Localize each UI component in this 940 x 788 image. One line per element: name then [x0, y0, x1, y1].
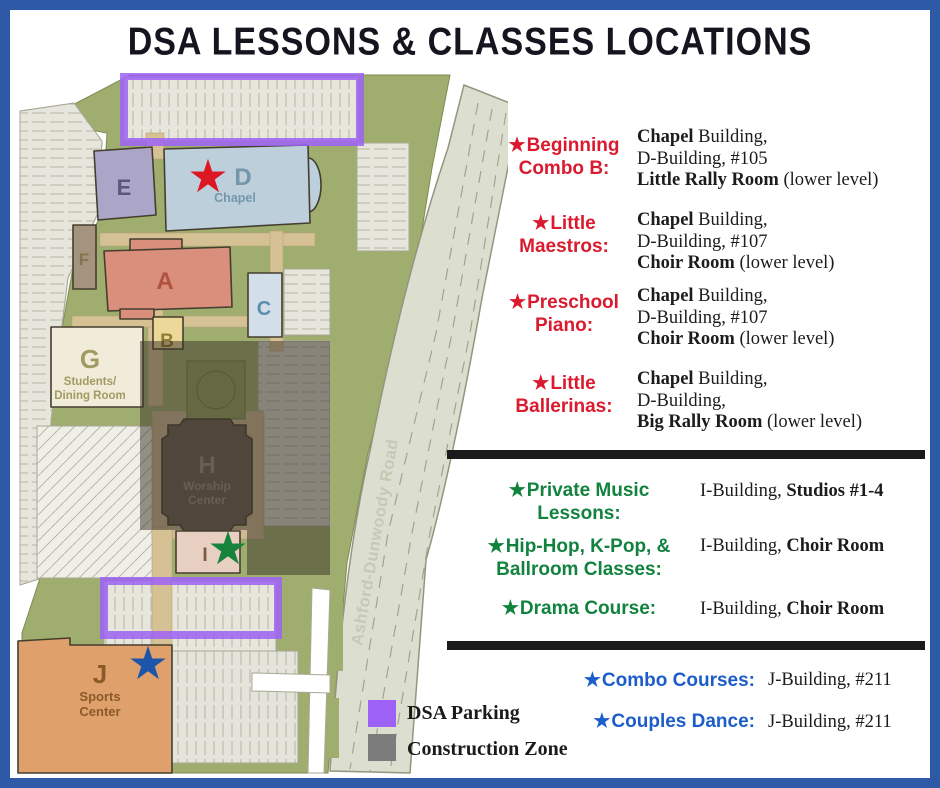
building-d-label: D [234, 164, 251, 191]
building-a-tab2 [120, 309, 154, 319]
location-combo-courses: J-Building, #211 [768, 670, 892, 692]
building-e-label: E [117, 175, 132, 200]
building-j-sublabel1: Sports [79, 689, 120, 704]
road-median [332, 601, 343, 671]
star-icon: ★ [593, 711, 610, 732]
poster: DSA LESSONS & CLASSES LOCATIONS [0, 0, 940, 788]
star-icon: ★ [532, 213, 549, 234]
divider-bar-bottom [447, 641, 925, 650]
class-label-hiphop-kpop-ballroom: ★Hip-Hop, K-Pop, &Ballroom Classes: [468, 535, 690, 581]
page-title: DSA LESSONS & CLASSES LOCATIONS [0, 20, 940, 65]
class-label-preschool-piano: ★PreschoolPiano: [496, 291, 632, 337]
building-g-sublabel1: Students/ [64, 376, 117, 388]
class-label-drama-course: ★Drama Course: [468, 597, 690, 620]
star-icon: ★ [509, 135, 526, 156]
construction-legend-swatch [368, 734, 396, 761]
class-label-private-music-lessons: ★Private MusicLessons: [468, 479, 690, 525]
road-median [328, 698, 339, 758]
location-hiphop-kpop-ballroom: I-Building, Choir Room [700, 536, 884, 558]
class-label-little-ballerinas: ★LittleBallerinas: [496, 372, 632, 418]
building-j-label: J [93, 659, 107, 689]
construction-legend-label: Construction Zone [407, 738, 568, 761]
building-a-label: A [156, 268, 173, 295]
location-private-music-lessons: I-Building, Studios #1-4 [700, 481, 884, 503]
class-label-couples-dance: ★Couples Dance: [560, 710, 755, 733]
building-g-label: G [80, 344, 100, 374]
star-icon: ★ [502, 598, 519, 619]
class-label-combo-courses: ★Combo Courses: [560, 669, 755, 692]
location-drama-course: I-Building, Choir Room [700, 599, 884, 621]
location-preschool-piano: Chapel Building,D-Building, #107Choir Ro… [637, 286, 834, 351]
building-c-label: C [257, 298, 271, 320]
building-g-sublabel2: Dining Room [54, 390, 126, 402]
blue-star-marker: ★ [127, 637, 168, 689]
star-icon: ★ [488, 536, 505, 557]
star-icon: ★ [584, 670, 601, 691]
location-beginning-combo-b: Chapel Building,D-Building, #105Little R… [637, 127, 878, 192]
location-little-maestros: Chapel Building,D-Building, #107Choir Ro… [637, 210, 834, 275]
class-label-beginning-combo-b: ★BeginningCombo B: [496, 134, 632, 180]
campus-map: Ashford-Dunwoody Road E D Chapel [12, 73, 508, 775]
campus-map-svg: Ashford-Dunwoody Road E D Chapel [12, 73, 508, 775]
parking-legend-swatch [368, 700, 396, 727]
star-icon: ★ [509, 480, 526, 501]
parking-legend-label: DSA Parking [407, 702, 520, 725]
star-icon: ★ [532, 373, 549, 394]
building-f-label: F [79, 250, 89, 269]
class-label-little-maestros: ★LittleMaestros: [496, 212, 632, 258]
star-icon: ★ [509, 292, 526, 313]
building-j-sublabel2: Center [79, 704, 120, 719]
location-couples-dance: J-Building, #211 [768, 712, 892, 734]
green-star-marker: ★ [207, 522, 248, 574]
divider-bar-top [447, 450, 925, 459]
location-little-ballerinas: Chapel Building,D-Building,Big Rally Roo… [637, 369, 862, 434]
red-star-marker: ★ [187, 150, 228, 202]
